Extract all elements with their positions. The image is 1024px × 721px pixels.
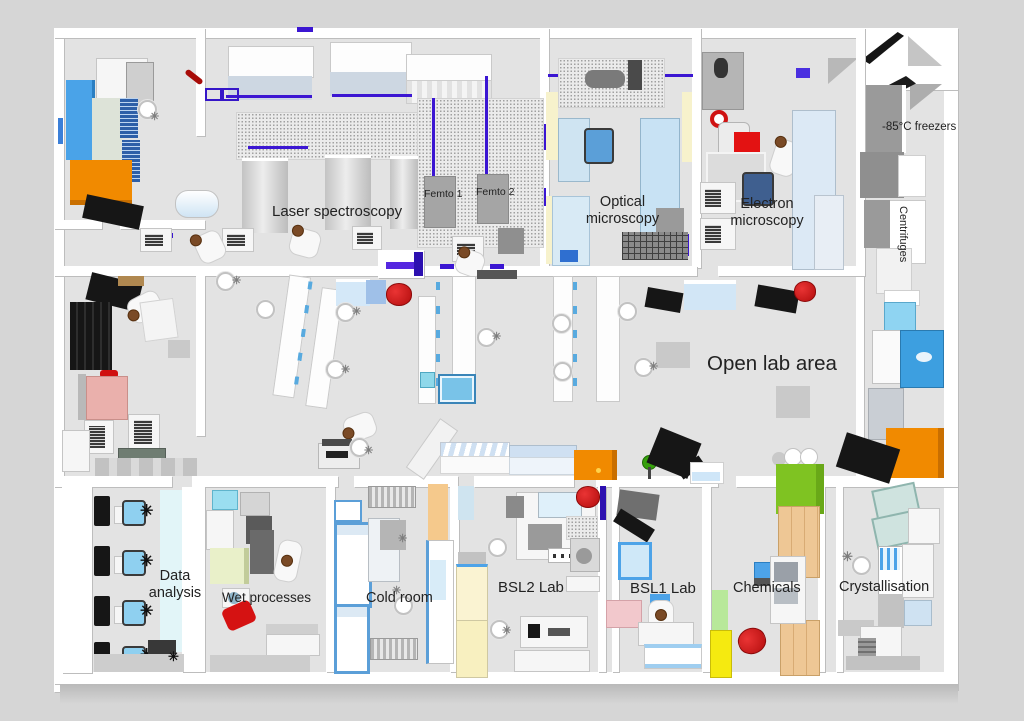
door-accent [297,27,313,32]
orange-cabinet-dot [596,468,601,473]
lab-bench [553,276,573,402]
wall-nmr-right [196,276,205,436]
label-bsl2: BSL2 Lab [498,579,564,597]
microscope-column [628,60,642,90]
person-head [655,609,667,621]
wall-midlab [736,476,776,487]
printer-slot [326,451,348,458]
laser-beam [432,98,435,178]
white-box [62,430,90,472]
stool [553,362,572,381]
lab-bench [596,276,620,402]
cyan-front-unit [884,302,916,332]
gray-slab [878,594,904,628]
data-left-wall [62,487,92,673]
floor-stripes [95,458,197,476]
gray-patch [168,340,190,358]
door-strip [546,92,558,160]
orange-cabinet [574,450,617,480]
biohazard-bin [576,486,600,508]
blue-cube [366,280,386,304]
wall-bench-top [406,54,492,82]
blue-frame-box [618,542,652,580]
floor-strip [210,655,310,672]
label-wet-processes: Wet processes [222,590,311,606]
pale-blue-strip [458,486,474,520]
nmr-rack-edge [78,374,86,420]
wood-shelf [118,276,144,286]
monitor [94,596,110,626]
label-electron-microscopy: Electron microscopy [722,196,812,231]
rack-front [705,225,721,243]
instrument-cart [140,228,172,252]
laser-port [205,88,222,101]
gray-patch [776,386,810,418]
door-accent [490,264,504,269]
fan-icon: ✳ [232,276,241,287]
coil-cabinet [120,98,138,138]
plant-stem [648,467,651,479]
femto2-table [477,174,509,224]
rack-front [89,426,105,448]
label-open-lab: Open lab area [707,352,837,377]
pink-bench [606,600,642,628]
vent-unit [370,638,418,660]
fan-icon: ✳ [150,112,159,123]
dash-cabinet-front [880,548,900,570]
bench [638,622,694,646]
wall-outer-top [54,28,866,38]
label-laser-spectroscopy: Laser spectroscopy [272,203,402,221]
fan-icon: ✳ [398,534,407,545]
printer-top [322,439,352,446]
laser-beam [332,94,412,97]
blue-bench-base [509,457,577,475]
blue-cabinet [66,80,95,160]
bench [566,576,600,592]
optical-table-wing [242,158,288,233]
stool [852,556,871,575]
blue-cabinet [684,280,736,310]
wall-midlab [192,476,338,487]
cabinet-panel [774,562,798,582]
instrument-cart [222,228,254,252]
laser-beam [248,146,308,149]
analyzer-tray [566,516,598,540]
blue-item [560,250,578,262]
wall-bench-top [330,42,412,74]
label-bsl1: BSL1 Lab [630,580,696,598]
wall-storage-inner [54,220,102,229]
gray-machine [858,638,876,658]
doorway-jamb [414,252,423,276]
blue-striped-bench [644,644,702,669]
label-data-analysis: Data analysis [146,568,204,603]
stool [488,538,507,557]
bench-equipment [548,628,570,636]
doorway-glow [386,262,416,269]
pale-green-strip [712,590,728,632]
stool [256,300,275,319]
monitor [94,496,110,526]
pink-rack [86,376,128,420]
sink-small [420,372,435,388]
stool [552,314,571,333]
laser-beam [485,76,488,176]
door-accent [58,118,63,144]
striped-bench-base [440,456,510,474]
door-accent [440,264,454,269]
tripod-icon: ✳ [168,650,179,663]
rack-front [134,420,152,444]
wall-outer-bottom [54,672,958,684]
microscope-body [585,70,625,88]
white-box [908,508,940,544]
freezer-unit [866,85,906,153]
blue-panel [904,600,932,626]
grid-mat [622,232,688,260]
blue-shelving [334,604,370,674]
dark-cabinet [250,530,274,574]
yellow-cabinet [710,630,732,678]
stool [618,302,637,321]
door-accent [600,486,606,520]
peach-strip [428,484,448,544]
white-box-front [692,472,720,481]
door-accent [796,68,810,78]
fan-icon: ✳ [502,626,511,637]
fan-icon: ✳ [352,307,361,318]
bottom-shadow [60,684,958,704]
chair-legs-icon: ✳ [140,604,153,620]
gray-box [498,228,524,254]
vent-unit [368,486,416,508]
freezer-unit [864,200,890,248]
lab-chair [584,128,614,164]
gray-box [506,496,524,518]
lab-floor-plan: ✳ ✳ [0,0,1024,721]
sink-large [438,374,476,404]
label-centrifuges: Centrifuges [896,206,909,262]
fan-icon: ✳ [341,365,350,376]
femto1-table [424,176,456,228]
equipment-rack [128,414,160,450]
freezer-door [898,155,926,197]
bench-top [266,624,318,634]
fan-icon: ✳ [649,362,658,373]
rack-front [705,189,721,207]
analyzer-body [528,524,562,550]
cart-front [357,232,373,244]
label-freezers: -85°C freezers [882,121,956,135]
wall-midlab [54,476,172,487]
door-strip [682,92,692,162]
tall-cabinet [814,195,844,270]
biohazard-bin [386,283,412,306]
floor-shadow [846,656,920,670]
wall-bench-top [228,46,314,78]
fan-icon: ✳ [364,446,373,457]
bench-dashes [573,282,577,394]
label-crystallisation: Crystallisation [839,579,929,596]
desk [139,298,178,342]
label-femto1: Femto 1 [424,188,463,201]
gray-patch [656,342,690,368]
label-chemicals: Chemicals [733,580,801,597]
fan-icon: ✳ [842,550,853,563]
biohazard-bin [794,281,816,302]
sage-panel [92,98,122,166]
incubator-knob [916,352,932,362]
gray-cabinet [240,492,270,516]
equipment-dark [714,58,728,78]
bench-equipment [528,624,540,638]
blue-shelving [334,500,362,522]
bench-long [514,650,590,672]
laser-port [222,88,239,101]
label-cold-room: Cold room [366,590,433,607]
label-optical-microscopy: Optical microscopy [580,194,665,229]
fridge-cap [458,552,486,564]
fan-icon: ✳ [492,332,501,343]
monitor [94,546,110,576]
person-head [280,554,294,568]
white-cylinder [175,190,219,218]
cream-fridge [456,620,488,678]
cart-front [145,234,163,246]
chair-legs-icon: ✳ [140,504,153,520]
instrument-cart [352,226,382,250]
tan-cabinet [780,620,820,676]
label-femto2: Femto 2 [476,186,515,199]
cream-fridge [456,564,488,624]
blue-cabinet [336,279,370,306]
cyan-sink-top [212,490,238,510]
bench-cap [477,270,517,279]
wall-bench-front [330,72,410,96]
pale-green-box [210,548,249,584]
wall-midlab [474,476,574,487]
black-panel-large [70,302,112,370]
unit-circle [576,548,592,564]
cart-front [227,234,245,246]
wall-toprooms-bottom [549,266,697,276]
white-cabinet [206,510,234,550]
bench [266,634,320,656]
